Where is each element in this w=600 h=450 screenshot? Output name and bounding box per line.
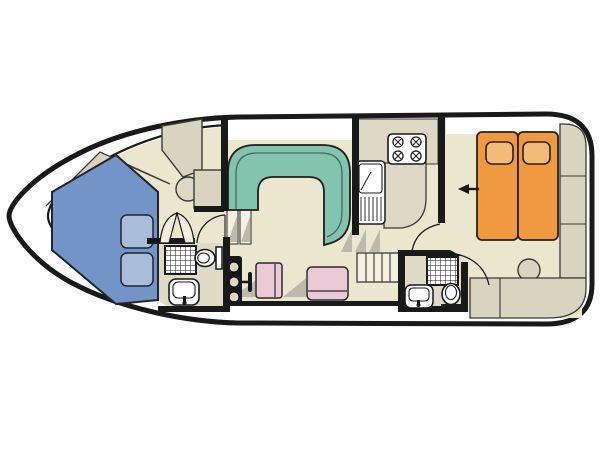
wall-forward-door-jamb bbox=[194, 206, 224, 212]
helm-seat bbox=[256, 263, 282, 298]
wall-aft-bath-left bbox=[398, 250, 405, 312]
v-berth-pillow-bottom bbox=[121, 253, 153, 286]
wall-saloon-galley bbox=[352, 116, 359, 235]
galley-sink bbox=[356, 161, 385, 224]
wall-forward-cabin bbox=[221, 116, 228, 211]
sink-aft bbox=[405, 285, 433, 308]
boat-floor-plan bbox=[0, 0, 600, 450]
helm-dial bbox=[229, 277, 239, 287]
wall-fwd-bath-right bbox=[223, 237, 230, 312]
wall-saloon-bottom bbox=[226, 301, 406, 306]
helm-dial bbox=[229, 262, 239, 272]
floor-plan-canvas bbox=[0, 0, 600, 450]
shower-forward bbox=[165, 246, 196, 274]
bench-seat bbox=[307, 267, 348, 300]
helm-dial bbox=[229, 292, 239, 302]
galley-counter bbox=[384, 163, 426, 228]
sink-forward bbox=[169, 279, 199, 305]
shower-aft bbox=[427, 257, 458, 285]
wall-galley-aft bbox=[438, 115, 445, 223]
toilet-aft bbox=[441, 284, 461, 310]
wall-aft-bath-right bbox=[461, 262, 468, 312]
bed-pillow-left bbox=[486, 142, 513, 164]
forward-cabinet bbox=[194, 170, 224, 208]
toilet-forward bbox=[195, 247, 222, 269]
stove-4-burner bbox=[388, 134, 426, 164]
wall-aft-bath-top bbox=[398, 250, 450, 256]
stern-bench-rear bbox=[470, 278, 586, 318]
companionway-stairs bbox=[357, 253, 399, 282]
stern-bench-side bbox=[560, 124, 586, 278]
bed-pillow-right bbox=[523, 142, 550, 164]
wall-fwd-bath-bottom bbox=[158, 306, 230, 312]
